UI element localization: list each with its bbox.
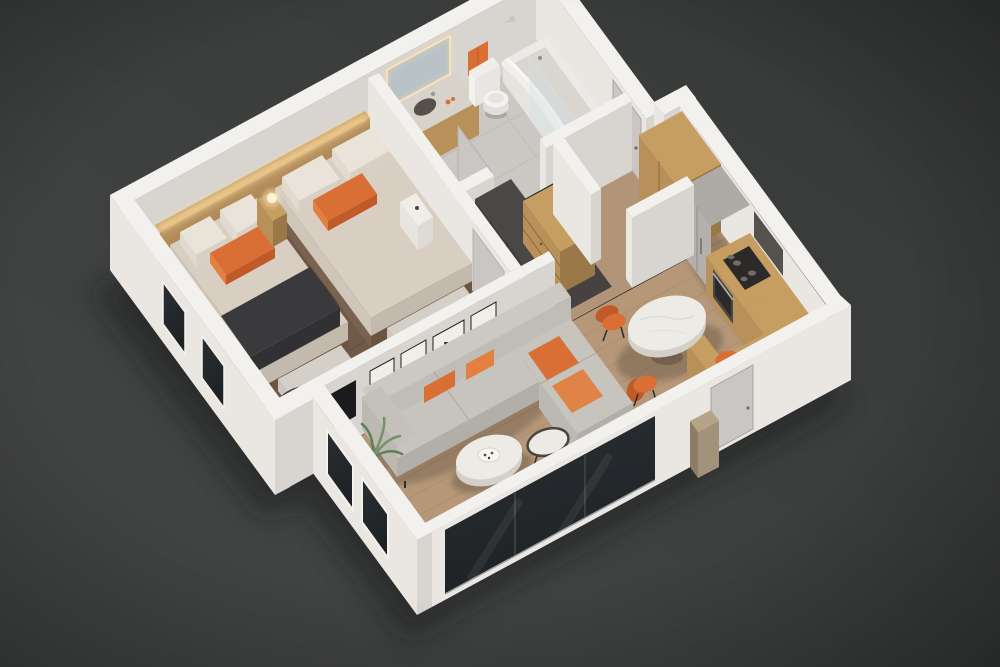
screenshot-root [0,0,1000,667]
vignette [0,0,1000,667]
apartment-3d-floorplan [0,0,1000,667]
